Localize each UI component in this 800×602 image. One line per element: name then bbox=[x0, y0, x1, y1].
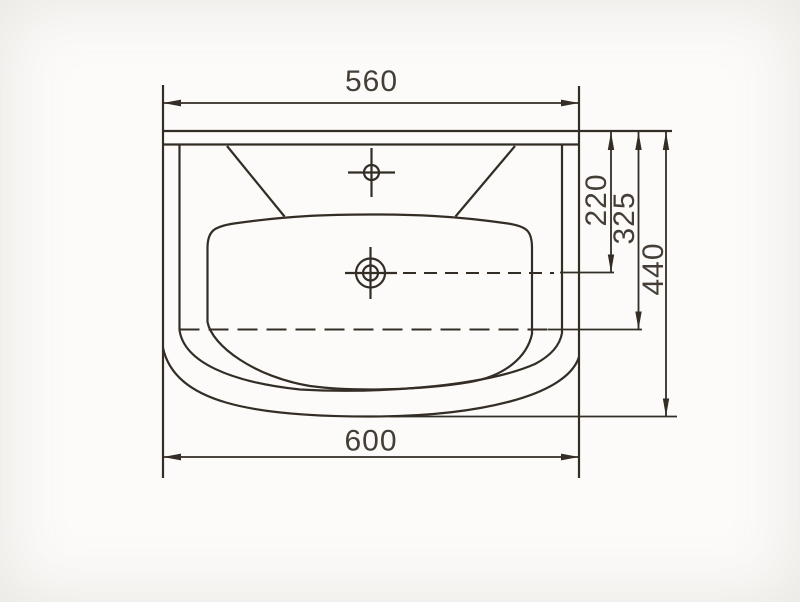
dim-label-depth-to-basin-edge: 325 bbox=[608, 191, 641, 244]
arrowhead-up-icon bbox=[663, 132, 669, 150]
dim-label-top-width: 560 bbox=[345, 65, 398, 98]
arrowhead-left-icon bbox=[163, 100, 181, 107]
inner-rim-bottom-arc bbox=[180, 330, 563, 391]
dim-label-overall-depth: 440 bbox=[637, 242, 670, 295]
dimension-overall-width: 600 bbox=[163, 425, 579, 461]
drain-hole bbox=[345, 247, 397, 299]
arrowhead-right-icon bbox=[561, 100, 579, 107]
arrowhead-left-icon bbox=[163, 454, 181, 461]
sink-outline bbox=[163, 85, 672, 478]
washbasin-technical-drawing: 560 600 220 325 440 bbox=[0, 0, 800, 602]
dimension-depth-to-basin-edge: 325 bbox=[608, 132, 642, 330]
dimension-top-width: 560 bbox=[163, 65, 579, 106]
dimension-overall-depth: 440 bbox=[637, 132, 670, 417]
right-slope-wall bbox=[456, 146, 516, 217]
arrowhead-up-icon bbox=[635, 132, 641, 150]
outer-bottom-arc bbox=[163, 348, 579, 417]
left-slope-wall bbox=[227, 146, 285, 217]
arrowhead-down-icon bbox=[608, 255, 614, 273]
dim-label-overall-width: 600 bbox=[344, 425, 397, 458]
basin-outline bbox=[208, 215, 533, 390]
faucet-hole bbox=[348, 148, 395, 197]
arrowhead-right-icon bbox=[561, 454, 579, 461]
drawing-canvas: 560 600 220 325 440 bbox=[0, 0, 800, 602]
arrowhead-down-icon bbox=[663, 399, 669, 417]
arrowhead-down-icon bbox=[635, 312, 641, 330]
arrowhead-up-icon bbox=[608, 132, 614, 150]
